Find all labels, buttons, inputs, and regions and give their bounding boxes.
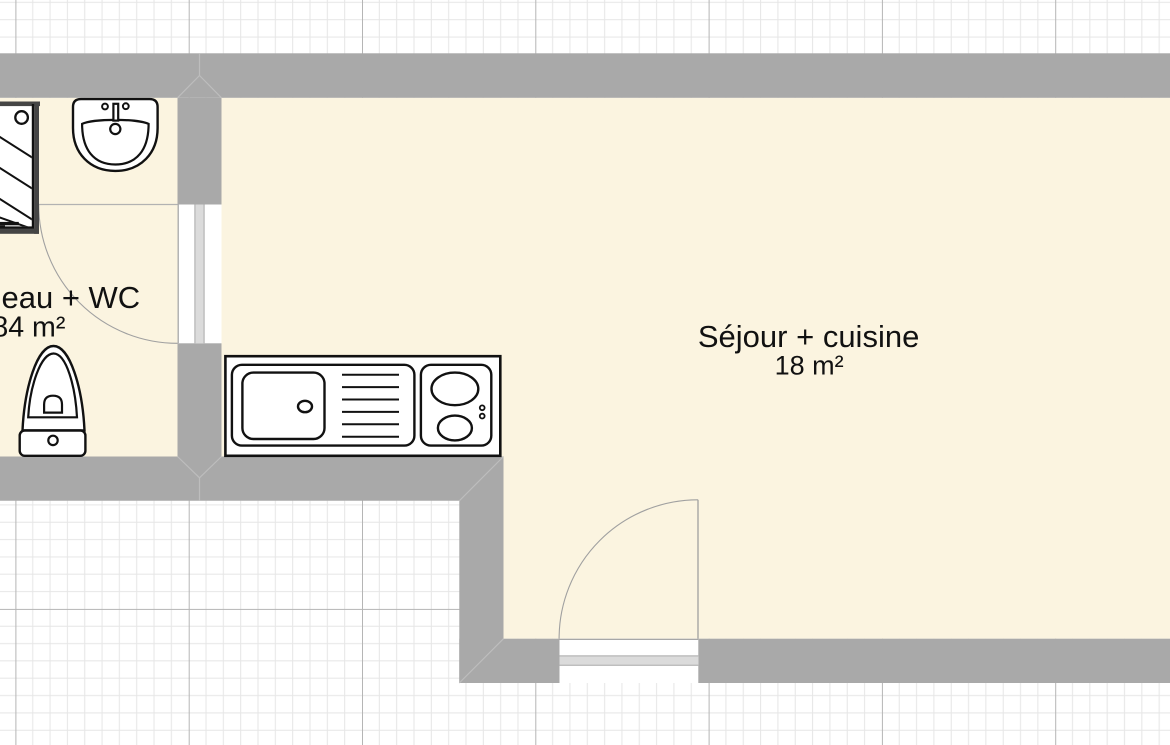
svg-text:18 m²: 18 m² (775, 351, 844, 381)
svg-text:Séjour + cuisine: Séjour + cuisine (698, 319, 919, 354)
svg-text:Salle d'eau + WC: Salle d'eau + WC (0, 280, 140, 315)
svg-text:84 m²: 84 m² (0, 311, 65, 343)
